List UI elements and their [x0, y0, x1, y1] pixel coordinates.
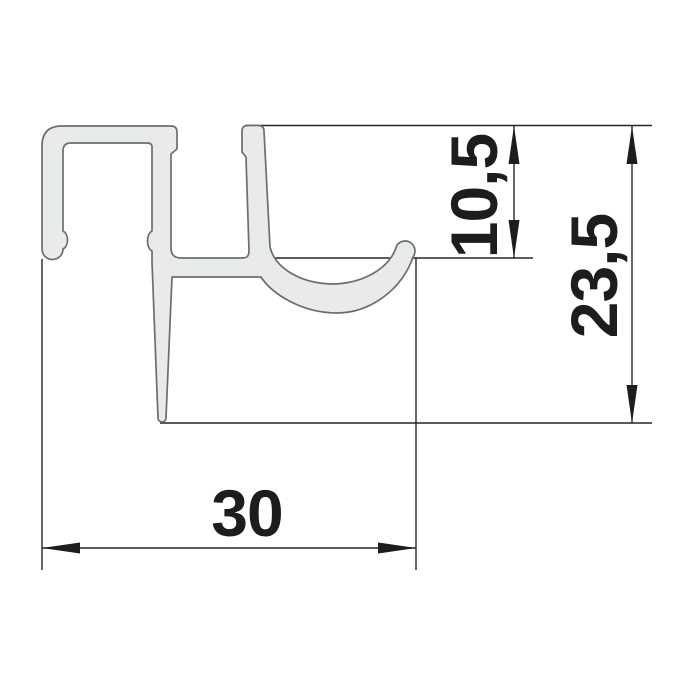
profile-cross-section [42, 126, 415, 423]
dimension-arrows [42, 126, 638, 554]
arrow-right-icon [378, 543, 416, 554]
dimension-lines [42, 126, 652, 571]
drawing-canvas: 10,5 23,5 30 [0, 0, 685, 685]
arrow-down-icon [627, 385, 638, 423]
profile-dimension-drawing: 10,5 23,5 30 [0, 0, 685, 685]
profile-shape-group [42, 126, 415, 423]
dimension-value-overall-width: 30 [211, 476, 282, 550]
dimension-value-hook-offset: 10,5 [437, 134, 511, 258]
dimension-labels: 10,5 23,5 30 [211, 134, 631, 550]
arrow-left-icon [42, 543, 80, 554]
dimension-value-overall-height: 23,5 [557, 214, 631, 338]
arrow-up-icon [627, 126, 638, 164]
